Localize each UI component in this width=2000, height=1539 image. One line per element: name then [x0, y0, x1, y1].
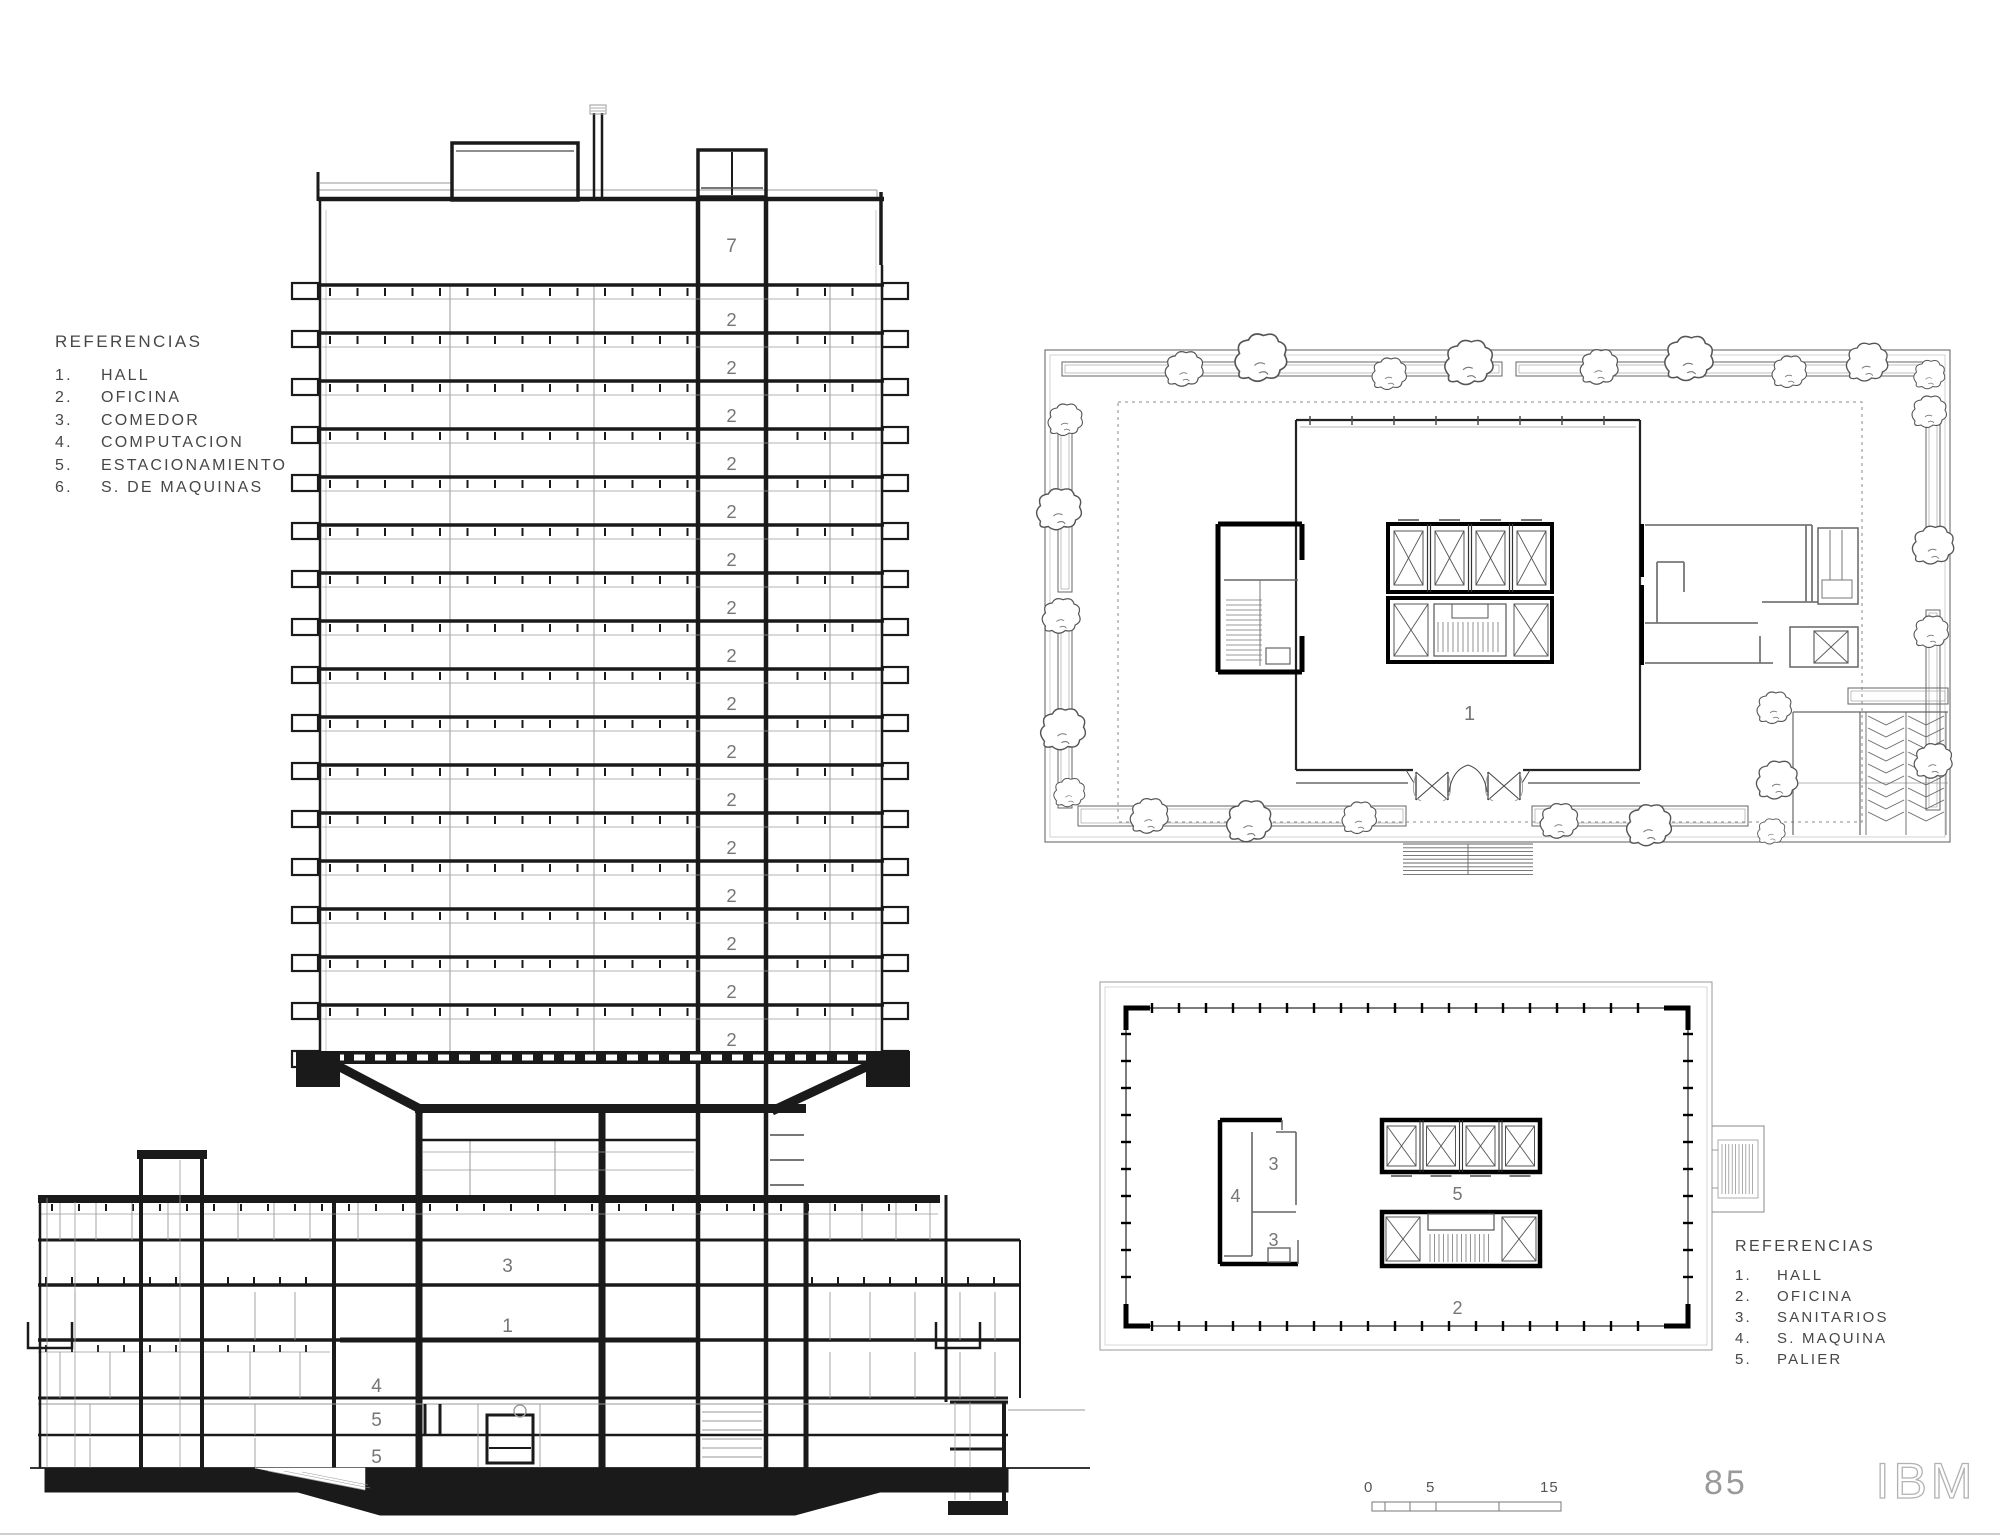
tree-icon — [1846, 343, 1887, 381]
scale-label-15: 15 — [1540, 1479, 1559, 1496]
scale-bar — [1372, 1502, 1561, 1511]
ground-plan-hall-label: 1 — [1464, 703, 1476, 725]
section-floor-label: 2 — [726, 741, 737, 762]
typical-plan-palier-label: 5 — [1452, 1184, 1463, 1204]
tree-icon — [1665, 336, 1713, 380]
tree-icon — [1912, 396, 1946, 428]
section-floor-label: 2 — [726, 549, 737, 570]
legend-item: 4.S. MAQUINA — [1735, 1328, 1889, 1349]
section-floor-label: 2 — [726, 933, 737, 954]
section-floor-label: 2 — [726, 837, 737, 858]
typical-plan-office-label: 2 — [1452, 1298, 1463, 1318]
section-floor-label: 2 — [726, 309, 737, 330]
section-floor-label: 2 — [726, 789, 737, 810]
ground-floor-plan-drawing: 1 — [1037, 334, 1954, 875]
legend-item: 3.SANITARIOS — [1735, 1307, 1889, 1328]
section-parking-label: 5 — [371, 1410, 383, 1431]
legend-item: 2.OFICINA — [1735, 1286, 1889, 1307]
section-floor-label: 2 — [726, 501, 737, 522]
page-bottom-rule — [0, 1533, 2000, 1535]
typical-plan-sanitary-label: 3 — [1268, 1154, 1279, 1174]
tree-icon — [1914, 360, 1945, 388]
tree-icon — [1054, 778, 1085, 806]
section-floor-label: 2 — [726, 1029, 737, 1050]
legend-item: 5.ESTACIONAMIENTO — [55, 455, 287, 477]
section-floor-label: 2 — [726, 981, 737, 1002]
legend-item: 5.PALIER — [1735, 1349, 1889, 1370]
tree-icon — [1914, 616, 1948, 648]
section-hall-label: 1 — [502, 1316, 514, 1337]
tree-icon — [1372, 358, 1406, 390]
section-computacion-label: 4 — [371, 1376, 383, 1397]
section-floor-label: 2 — [726, 597, 737, 618]
tree-icon — [1914, 744, 1952, 779]
tree-icon — [1756, 761, 1797, 799]
legend-title: REFERENCIAS — [1735, 1238, 1889, 1256]
drawing-sheet: 7222222222222222231455 1 43352 REFERENCI… — [0, 0, 2000, 1539]
ibm-logo-text: IBM — [1876, 1453, 1977, 1509]
plan-legend: REFERENCIAS 1.HALL 2.OFICINA 3.SANITARIO… — [1735, 1238, 1889, 1370]
typical-plan-sanitary-label: 3 — [1268, 1230, 1279, 1250]
tree-icon — [1757, 692, 1791, 724]
legend-item: 6.S. DE MAQUINAS — [55, 477, 287, 499]
tree-icon — [1342, 802, 1376, 834]
page-number: 85 — [1704, 1464, 1748, 1503]
building-section-drawing: 7222222222222222231455 — [28, 105, 1090, 1515]
section-floor-label: 2 — [726, 885, 737, 906]
typical-floor-plan-drawing: 43352 — [1100, 982, 1764, 1350]
tree-icon — [1165, 352, 1203, 387]
scale-label-5: 5 — [1426, 1479, 1435, 1496]
scale-label-0: 0 — [1364, 1479, 1373, 1496]
legend-item: 1.HALL — [55, 365, 287, 387]
ibm-logo: IBM — [1868, 1452, 1988, 1514]
tree-icon — [1540, 804, 1578, 839]
section-floor-label: 2 — [726, 357, 737, 378]
section-parking-label: 5 — [371, 1447, 383, 1468]
tree-icon — [1130, 799, 1168, 834]
typical-plan-machine-label: 4 — [1230, 1186, 1241, 1206]
tree-icon — [1235, 334, 1287, 381]
section-floor-label: 2 — [726, 645, 737, 666]
section-floor-label: 2 — [726, 693, 737, 714]
tree-icon — [1772, 356, 1806, 388]
tree-icon — [1048, 404, 1082, 436]
legend-item: 4.COMPUTACION — [55, 432, 287, 454]
legend-title: REFERENCIAS — [55, 332, 287, 352]
section-top-floor-label: 7 — [726, 236, 738, 257]
legend-item: 3.COMEDOR — [55, 410, 287, 432]
tree-icon — [1627, 805, 1672, 846]
section-floor-label: 2 — [726, 453, 737, 474]
section-comedor-label: 3 — [502, 1256, 514, 1277]
tree-icon — [1042, 599, 1080, 634]
tree-icon — [1445, 340, 1493, 384]
section-floor-label: 2 — [726, 405, 737, 426]
tree-icon — [1227, 801, 1272, 842]
tree-icon — [1041, 709, 1086, 750]
legend-item: 2.OFICINA — [55, 387, 287, 409]
legend-item: 1.HALL — [1735, 1265, 1889, 1286]
tree-icon — [1912, 526, 1953, 564]
tree-icon — [1580, 350, 1618, 385]
tree-icon — [1037, 489, 1082, 530]
section-legend: REFERENCIAS 1.HALL 2.OFICINA 3.COMEDOR 4… — [55, 332, 287, 499]
tree-icon — [1758, 819, 1786, 844]
architectural-drawing: 7222222222222222231455 1 43352 — [0, 0, 2000, 1539]
